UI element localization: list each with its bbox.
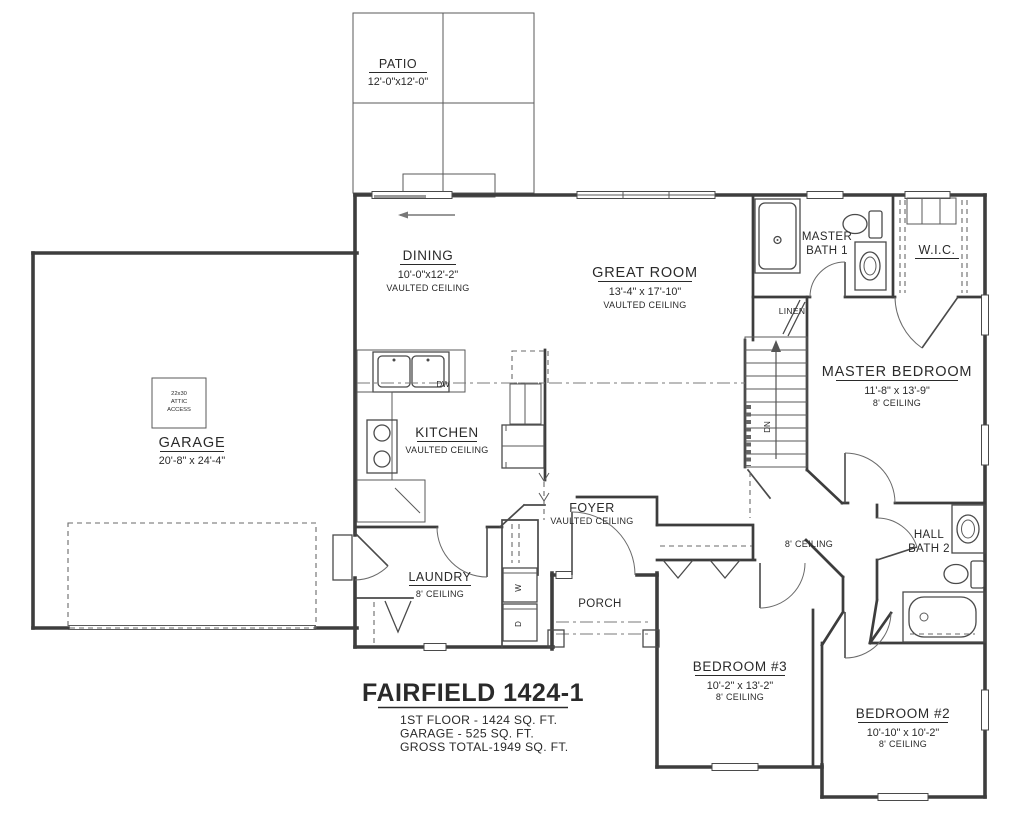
- hall-bath-label-1: HALL: [914, 529, 945, 541]
- master-bedroom-dims: 11'-8" x 13'-9": [864, 385, 930, 397]
- bedroom3-note: 8' CEILING: [716, 692, 764, 702]
- dryer-label: D: [514, 621, 523, 627]
- floor-plan-canvas: PATIO 12'-0"x12'-0" DINING 10'-0"x12'-2"…: [0, 0, 1024, 819]
- bedroom3-door: [760, 563, 805, 608]
- porch-details: [548, 622, 659, 647]
- attic-access-line3: ACCESS: [167, 407, 191, 413]
- plan-sqft-line2: GARAGE - 525 SQ. FT.: [400, 727, 534, 741]
- great-room-dims: 13'-4" x 17'-10": [609, 286, 682, 298]
- hall-bath-label-2: BATH 2: [908, 543, 950, 555]
- slide-arrow-icon: [398, 212, 408, 219]
- foyer-note: VAULTED CEILING: [550, 516, 633, 526]
- foyer-label: FOYER: [569, 501, 615, 515]
- master-bath-label-1: MASTER: [802, 231, 852, 243]
- dishwasher-label: DW: [436, 380, 450, 389]
- dining-note: VAULTED CEILING: [386, 283, 469, 293]
- laundry-label: LAUNDRY: [408, 570, 471, 584]
- labels: PATIO 12'-0"x12'-0" DINING 10'-0"x12'-2"…: [159, 57, 973, 749]
- refrigerator: [502, 425, 544, 468]
- patio-outline: [353, 13, 534, 197]
- laundry-details: [374, 524, 537, 644]
- patio-dims: 12'-0"x12'-0": [368, 76, 429, 88]
- pantry-cabinets: [510, 351, 548, 424]
- laundry-note: 8' CEILING: [416, 589, 464, 599]
- coat-closet-shelf: [512, 524, 519, 563]
- garage-details: [68, 378, 352, 628]
- plan-sqft-line1: 1ST FLOOR - 1424 SQ. FT.: [400, 713, 557, 727]
- attic-access-line1: 22x30: [171, 391, 187, 397]
- master-bath-label-2: BATH 1: [806, 245, 848, 257]
- shower: [755, 199, 800, 273]
- bedroom3-dims: 10'-2" x 13'-2": [707, 680, 774, 692]
- master-bedroom-door: [845, 453, 895, 503]
- garage-entry-door: [355, 533, 388, 580]
- dining-dims: 10'-0"x12'-2": [398, 269, 459, 281]
- washer-label: W: [514, 584, 523, 592]
- stairs-dn-label: DN: [763, 421, 772, 433]
- patio-label: PATIO: [379, 57, 417, 71]
- master-bedroom-note: 8' CEILING: [873, 398, 921, 408]
- sliding-door: [372, 192, 455, 219]
- wic-label: W.I.C.: [918, 243, 955, 257]
- great-room-label: GREAT ROOM: [592, 265, 698, 281]
- title-block: FAIRFIELD 1424-1 1ST FLOOR - 1424 SQ. FT…: [362, 679, 584, 754]
- master-bath-door: [810, 262, 845, 297]
- vanity-sink: [855, 242, 886, 290]
- bedroom3-label: BEDROOM #3: [693, 659, 788, 674]
- porch-label: PORCH: [578, 598, 622, 610]
- toilet: [944, 561, 984, 588]
- plan-sqft-line3: GROSS TOTAL-1949 SQ. FT.: [400, 740, 568, 754]
- kitchen-note: VAULTED CEILING: [405, 445, 488, 455]
- garage-stoop: [333, 535, 352, 580]
- kitchen-label: KITCHEN: [415, 425, 478, 440]
- bathtub: [903, 592, 985, 642]
- plan-title: FAIRFIELD 1424-1: [362, 679, 584, 707]
- garage-door-dashed-area: [68, 523, 316, 628]
- stairs-up-arrow-icon: [771, 340, 781, 352]
- hall-note: 8' CEILING: [785, 539, 833, 549]
- bedroom2-door: [845, 612, 891, 658]
- wic-door: [895, 297, 958, 348]
- bedroom3-closet: [660, 546, 752, 578]
- bedroom2-note: 8' CEILING: [879, 739, 927, 749]
- garage-label: GARAGE: [159, 435, 226, 451]
- dining-label: DINING: [403, 248, 454, 263]
- vanity-sink: [952, 505, 985, 553]
- master-bedroom-label: MASTER BEDROOM: [822, 364, 973, 380]
- bedroom2-dims: 10'-10" x 10'-2": [867, 727, 940, 739]
- stairs: [745, 337, 807, 467]
- great-room-note: VAULTED CEILING: [603, 300, 686, 310]
- master-bath-fixtures: [755, 199, 886, 336]
- bedroom2-label: BEDROOM #2: [856, 706, 951, 721]
- attic-access-line2: ATTIC: [171, 399, 187, 405]
- laundry-closet: [374, 601, 411, 644]
- floor-plan-page: PATIO 12'-0"x12'-0" DINING 10'-0"x12'-2"…: [0, 0, 1024, 819]
- linen-label: LINEN: [779, 306, 806, 316]
- garage-dims: 20'-8" x 24'-4": [159, 455, 226, 467]
- hall-bath-fixtures: [903, 505, 985, 642]
